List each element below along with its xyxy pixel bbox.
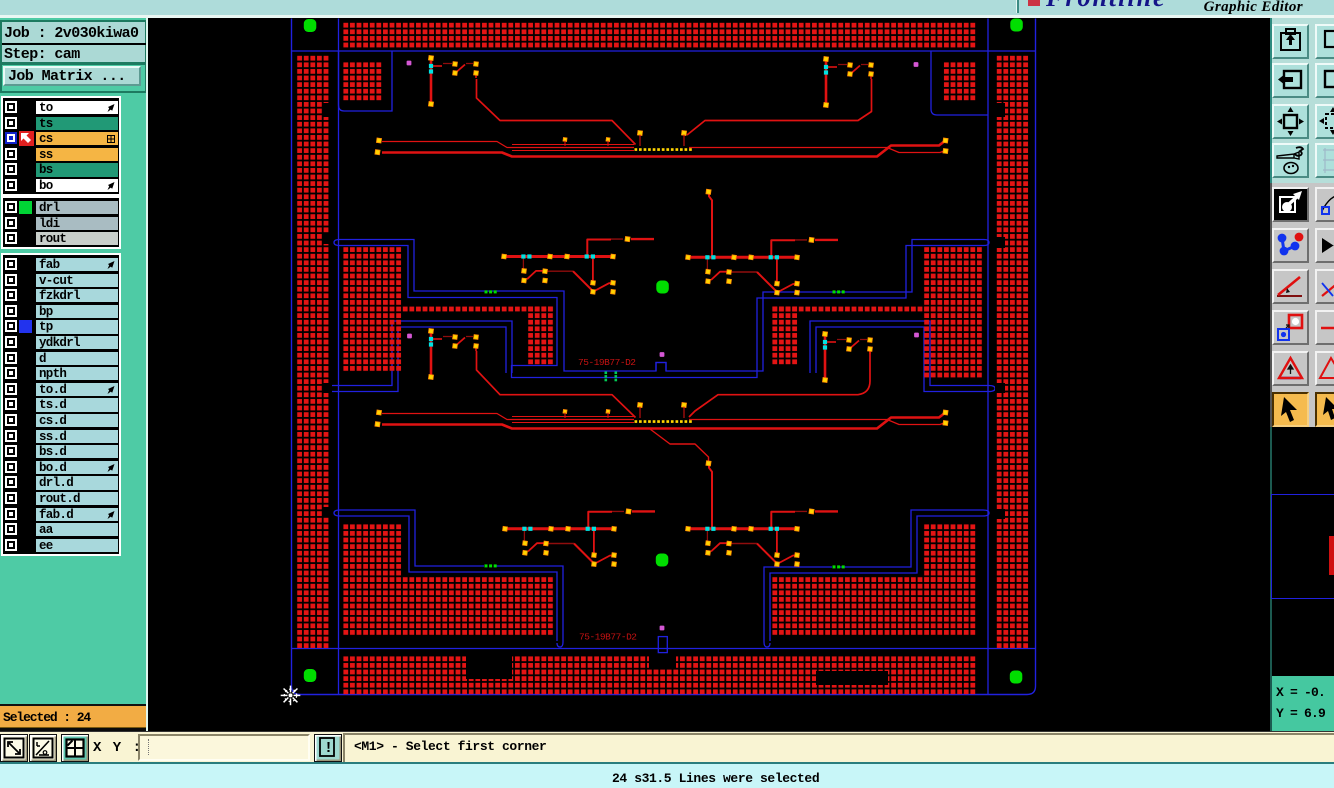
svg-text:75-19B77-D2: 75-19B77-D2: [579, 632, 637, 643]
svg-text:75-19B77-D2: 75-19B77-D2: [578, 357, 636, 368]
svg-text:!: !: [324, 740, 333, 757]
